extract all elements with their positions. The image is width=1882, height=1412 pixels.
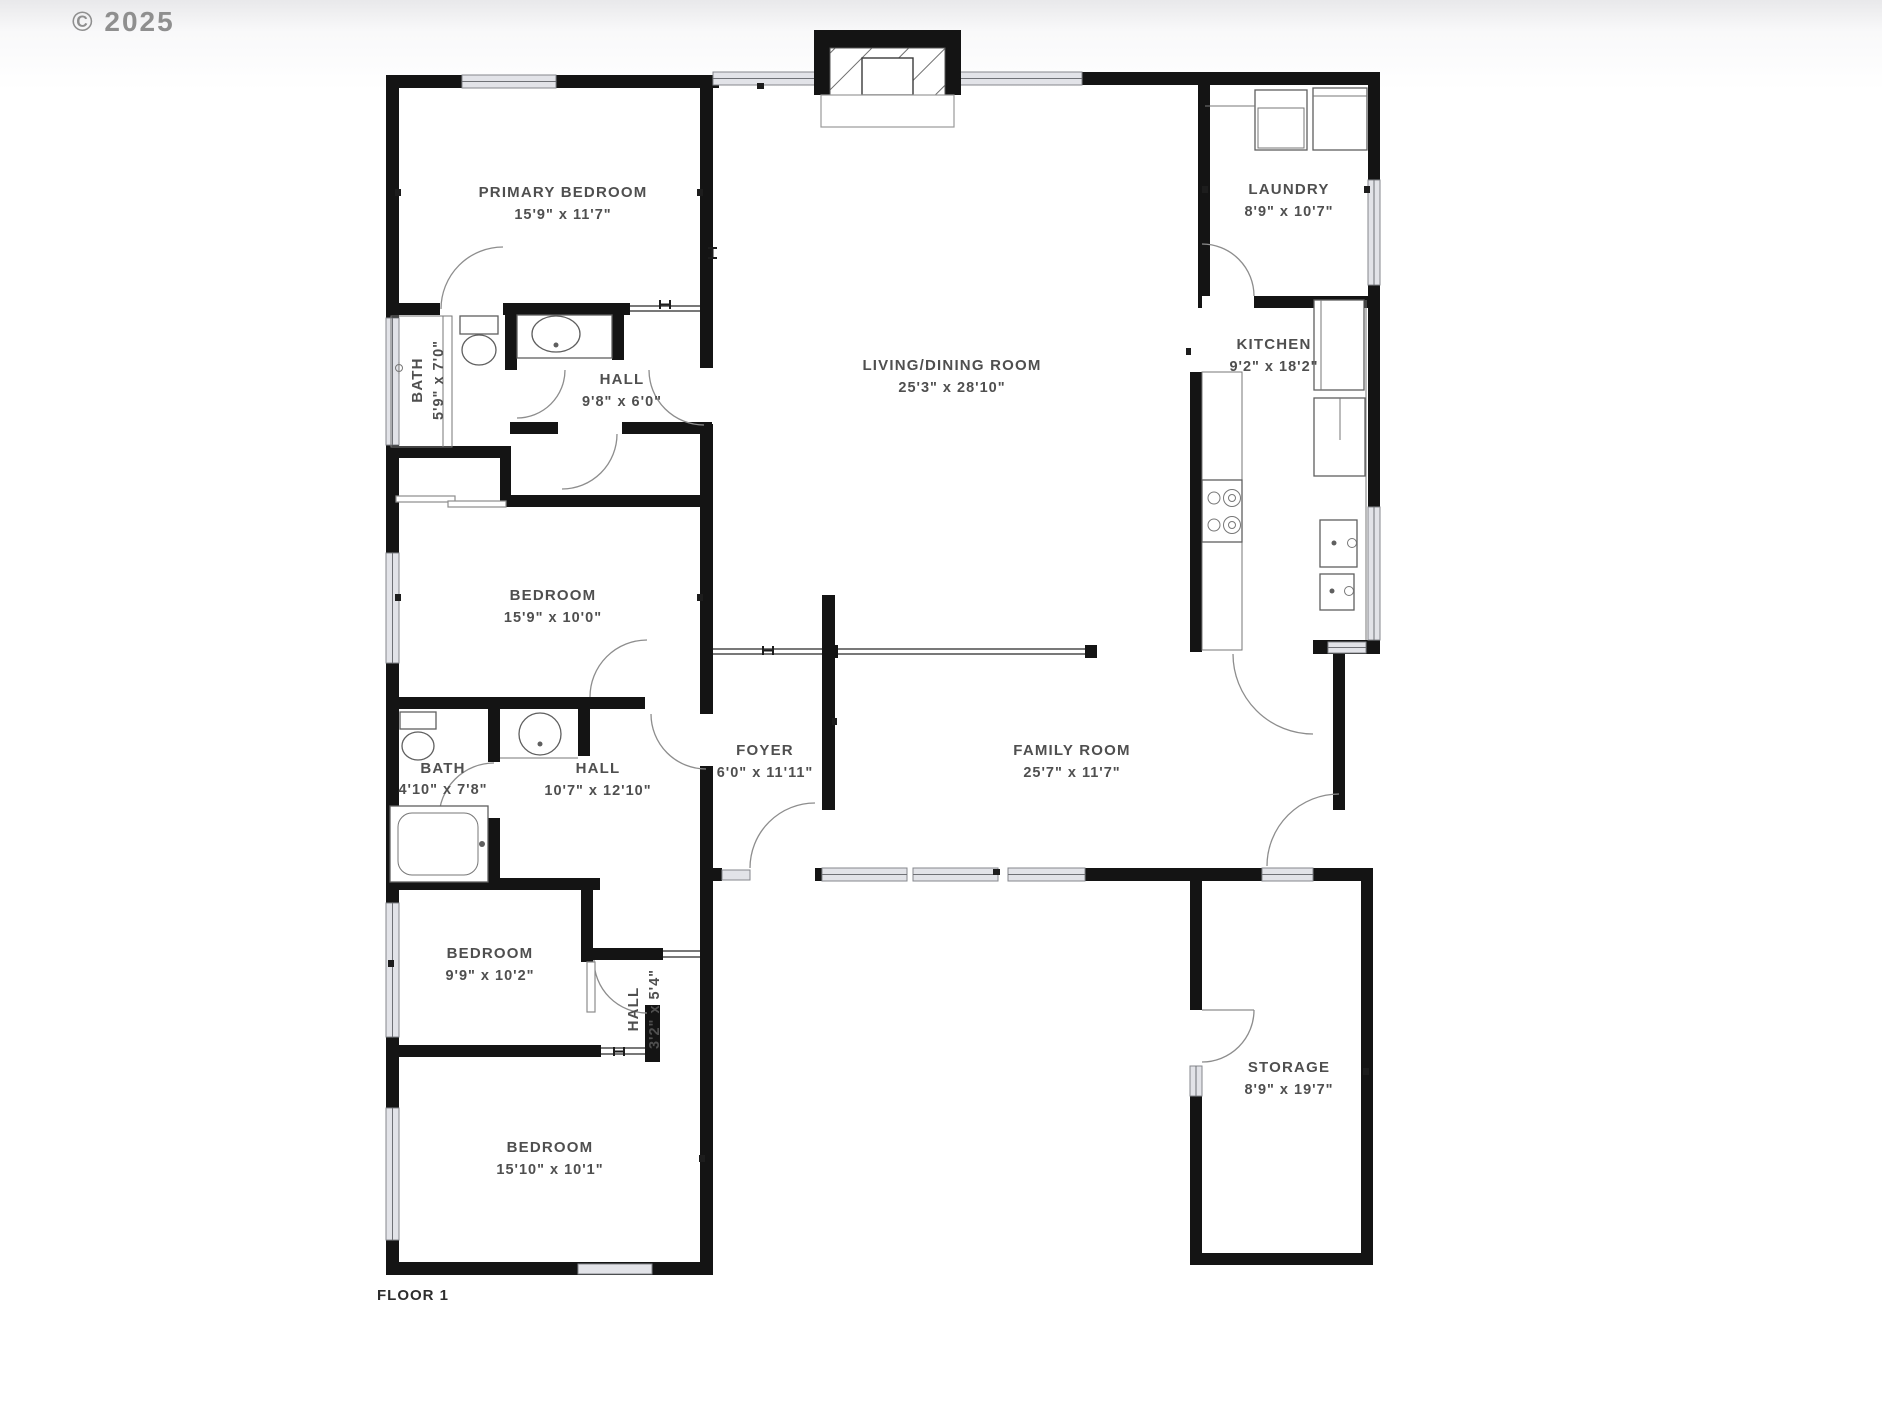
room-label-primary-bedroom: PRIMARY BEDROOM 15'9" x 11'7": [479, 184, 648, 223]
closet-sliding-doors: [396, 496, 506, 507]
svg-text:8'9" x 10'7": 8'9" x 10'7": [1244, 204, 1333, 220]
svg-text:9'8" x 6'0": 9'8" x 6'0": [582, 394, 662, 410]
svg-text:BATH: BATH: [420, 760, 465, 777]
svg-text:BEDROOM: BEDROOM: [510, 587, 597, 604]
svg-text:15'9" x 10'0": 15'9" x 10'0": [504, 610, 602, 626]
floorplan-drawing: PRIMARY BEDROOM 15'9" x 11'7" BATH 5'9" …: [0, 0, 1882, 1412]
bathtub: [390, 806, 488, 882]
floor-label: FLOOR 1: [377, 1287, 449, 1304]
room-label-storage: STORAGE 8'9" x 19'7": [1244, 1059, 1333, 1098]
fixtures: [390, 30, 1367, 882]
svg-text:LIVING/DINING ROOM: LIVING/DINING ROOM: [862, 357, 1041, 374]
svg-text:BEDROOM: BEDROOM: [447, 945, 534, 962]
svg-text:BEDROOM: BEDROOM: [507, 1139, 594, 1156]
room-label-bath-primary: BATH 5'9" x 7'0": [409, 340, 447, 420]
svg-text:10'7" x 12'10": 10'7" x 12'10": [544, 783, 651, 799]
svg-text:4'10" x 7'8": 4'10" x 7'8": [398, 782, 487, 798]
svg-text:8'9" x 19'7": 8'9" x 19'7": [1244, 1082, 1333, 1098]
kitchen-fridge-pantry: [1314, 300, 1365, 476]
svg-text:25'3" x 28'10": 25'3" x 28'10": [898, 380, 1005, 396]
room-label-bedroom-4: BEDROOM 15'10" x 10'1": [496, 1139, 603, 1178]
svg-text:KITCHEN: KITCHEN: [1236, 336, 1311, 353]
svg-text:FOYER: FOYER: [736, 742, 794, 759]
svg-text:PRIMARY BEDROOM: PRIMARY BEDROOM: [479, 184, 648, 201]
room-label-family-room: FAMILY ROOM 25'7" x 11'7": [1013, 742, 1130, 781]
floorplan-canvas: © 2025: [0, 0, 1882, 1412]
svg-text:FAMILY ROOM: FAMILY ROOM: [1013, 742, 1130, 759]
toilet-primary: [460, 316, 498, 365]
svg-text:3'2" x 5'4": 3'2" x 5'4": [647, 969, 663, 1049]
room-label-bedroom-3: BEDROOM 9'9" x 10'2": [445, 945, 534, 984]
room-label-kitchen: KITCHEN 9'2" x 18'2": [1229, 336, 1318, 375]
room-label-laundry: LAUNDRY 8'9" x 10'7": [1244, 181, 1333, 220]
fireplace: [814, 30, 961, 127]
svg-text:6'0" x 11'11": 6'0" x 11'11": [717, 765, 814, 781]
room-label-hall-small: HALL 3'2" x 5'4": [625, 969, 663, 1049]
svg-text:HALL: HALL: [600, 371, 645, 388]
svg-text:HALL: HALL: [625, 987, 642, 1032]
svg-text:25'7" x 11'7": 25'7" x 11'7": [1023, 765, 1120, 781]
pedestal-sink: [500, 713, 578, 758]
svg-text:BATH: BATH: [409, 357, 426, 402]
toilet-hall-bath: [400, 712, 436, 760]
room-label-hall-center: HALL 10'7" x 12'10": [544, 760, 651, 799]
svg-text:5'9" x 7'0": 5'9" x 7'0": [431, 340, 447, 420]
room-label-bath-hall: BATH 4'10" x 7'8": [398, 760, 487, 798]
opening-marker: [613, 247, 774, 1056]
svg-text:HALL: HALL: [576, 760, 621, 777]
svg-text:15'9" x 11'7": 15'9" x 11'7": [514, 207, 611, 223]
svg-text:15'10" x 10'1": 15'10" x 10'1": [496, 1162, 603, 1178]
room-label-foyer: FOYER 6'0" x 11'11": [717, 742, 814, 781]
svg-text:STORAGE: STORAGE: [1248, 1059, 1330, 1076]
svg-text:LAUNDRY: LAUNDRY: [1248, 181, 1329, 198]
svg-text:9'9" x 10'2": 9'9" x 10'2": [445, 968, 534, 984]
kitchen-island-cooktop: [1202, 372, 1242, 650]
room-label-bedroom-2: BEDROOM 15'9" x 10'0": [504, 587, 602, 626]
washer-dryer: [1205, 88, 1367, 150]
openings: [601, 306, 1085, 1054]
vanity-sink-primary: [517, 315, 612, 358]
svg-text:9'2" x 18'2": 9'2" x 18'2": [1229, 359, 1318, 375]
room-label-living-dining: LIVING/DINING ROOM 25'3" x 28'10": [862, 357, 1041, 396]
